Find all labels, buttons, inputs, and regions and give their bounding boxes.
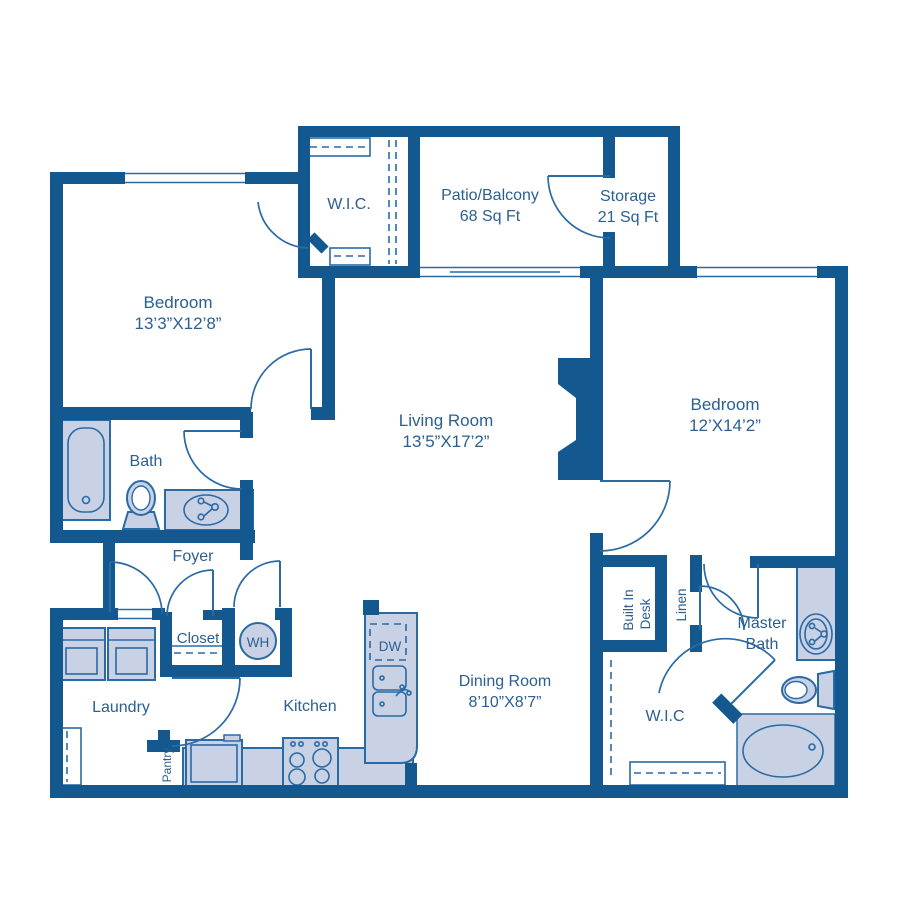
wic-door-stub bbox=[307, 232, 328, 253]
sliding-glass-door bbox=[420, 266, 580, 278]
closet-shelving bbox=[172, 138, 725, 785]
closet-label: Closet bbox=[177, 630, 220, 647]
wic-bottom-label: W.I.C bbox=[645, 708, 684, 725]
master-bath-door bbox=[704, 564, 758, 618]
foyer-door bbox=[110, 562, 162, 614]
kitchen-peninsula bbox=[365, 613, 417, 763]
bedroom2-door bbox=[600, 481, 670, 551]
living-room-dims: 13’5”X17’2” bbox=[403, 432, 490, 451]
foyer-label: Foyer bbox=[173, 548, 215, 565]
storage-area: 21 Sq Ft bbox=[598, 209, 659, 226]
toilet-bowl bbox=[132, 486, 150, 510]
linen-label: Linen bbox=[674, 588, 689, 621]
built-in-desk-label-1: Built In bbox=[621, 589, 636, 630]
window-bedroom1 bbox=[125, 172, 245, 184]
laundry-label: Laundry bbox=[92, 699, 150, 716]
water-heater-label: WH bbox=[247, 635, 270, 650]
dining-room-label: Dining Room bbox=[459, 673, 551, 690]
master-bath-label-2: Bath bbox=[746, 636, 779, 653]
floor-plan: W.I.C. Patio/Balcony 68 Sq Ft Storage 21… bbox=[0, 0, 900, 900]
master-bath-label-1: Master bbox=[738, 615, 788, 632]
dishwasher-label: DW bbox=[379, 639, 402, 654]
built-in-desk-label-2: Desk bbox=[638, 598, 653, 629]
patio-label: Patio/Balcony bbox=[441, 187, 539, 204]
pantry-label: Pantry bbox=[160, 748, 174, 783]
water-heater-door bbox=[234, 561, 280, 607]
floor-plan-drawing: W.I.C. Patio/Balcony 68 Sq Ft Storage 21… bbox=[0, 0, 900, 900]
living-room-label: Living Room bbox=[399, 411, 494, 430]
vanity-counter bbox=[165, 490, 253, 530]
storage-door bbox=[548, 176, 610, 238]
bedroom2-dims: 12’X14’2” bbox=[689, 416, 761, 435]
window-bedroom2 bbox=[697, 266, 817, 278]
bath-label: Bath bbox=[130, 453, 163, 470]
bath-fixtures bbox=[62, 420, 253, 530]
bath-door bbox=[184, 431, 242, 489]
bedroom1-door bbox=[251, 349, 311, 409]
storage-label: Storage bbox=[600, 188, 656, 205]
master-toilet-tank bbox=[818, 671, 834, 709]
walls bbox=[50, 126, 848, 798]
dining-room-dims: 8’10”X8’7” bbox=[469, 694, 542, 711]
bathtub-icon bbox=[62, 420, 110, 520]
master-bath-fixtures bbox=[737, 563, 837, 788]
refrigerator-icon bbox=[186, 740, 242, 787]
kitchen-label: Kitchen bbox=[283, 698, 336, 715]
bedroom1-dims: 13’3”X12’8” bbox=[135, 314, 222, 333]
fireplace-wall bbox=[558, 358, 603, 480]
wic-top-label: W.I.C. bbox=[327, 196, 371, 213]
dryer-icon bbox=[108, 628, 155, 680]
bedroom1-label: Bedroom bbox=[144, 293, 213, 312]
washer-icon bbox=[58, 628, 105, 680]
patio-area: 68 Sq Ft bbox=[460, 208, 521, 225]
bedroom2-label: Bedroom bbox=[691, 395, 760, 414]
closet-door bbox=[167, 570, 213, 616]
window-laundry bbox=[118, 608, 152, 620]
